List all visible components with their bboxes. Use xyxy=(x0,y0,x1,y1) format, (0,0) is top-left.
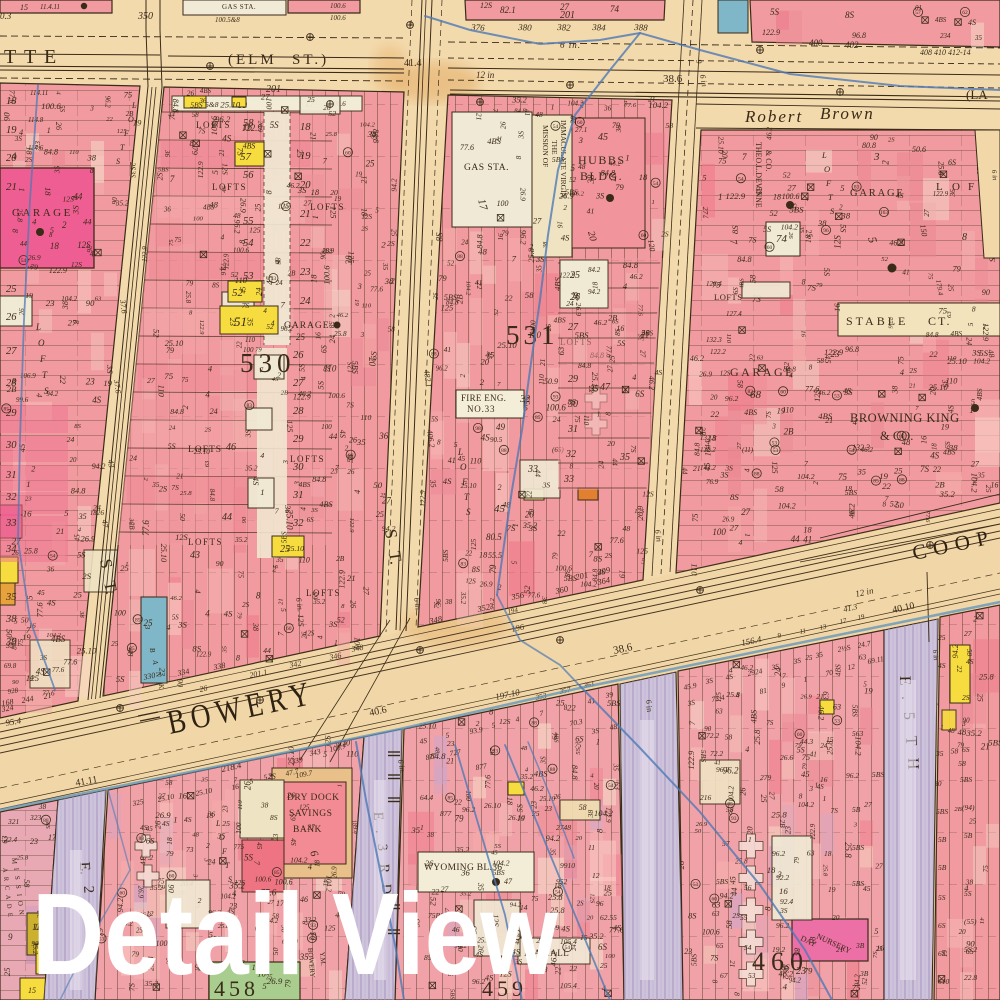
svg-text:4BS: 4BS xyxy=(200,88,212,95)
svg-text:57: 57 xyxy=(915,10,921,16)
svg-text:16: 16 xyxy=(920,435,929,444)
svg-text:58: 58 xyxy=(724,920,734,929)
svg-text:84.8: 84.8 xyxy=(208,489,216,502)
svg-text:27: 27 xyxy=(68,318,77,328)
svg-text:1: 1 xyxy=(625,153,629,163)
svg-text:8: 8 xyxy=(802,278,806,287)
svg-text:6S: 6S xyxy=(307,516,315,524)
svg-text:7S: 7S xyxy=(629,445,638,453)
svg-text:63: 63 xyxy=(946,311,953,318)
svg-text:LOFTS: LOFTS xyxy=(212,182,247,192)
svg-text:122.9: 122.9 xyxy=(198,320,205,335)
svg-text:45: 45 xyxy=(598,132,608,143)
svg-text:35: 35 xyxy=(78,512,87,521)
svg-text:96.2: 96.2 xyxy=(436,366,449,373)
svg-text:25.10: 25.10 xyxy=(716,136,725,153)
svg-text:41: 41 xyxy=(587,206,595,215)
svg-text:84.8: 84.8 xyxy=(171,99,180,113)
svg-text:19: 19 xyxy=(353,299,360,306)
svg-text:122.9: 122.9 xyxy=(981,323,990,341)
svg-text:44: 44 xyxy=(534,469,543,477)
svg-text:18: 18 xyxy=(311,187,320,197)
svg-text:26.9: 26.9 xyxy=(81,534,97,544)
svg-text:41: 41 xyxy=(139,858,148,865)
svg-text:4: 4 xyxy=(32,216,37,226)
svg-text:5: 5 xyxy=(510,561,518,565)
svg-text:90: 90 xyxy=(963,716,970,724)
svg-text:41.4: 41.4 xyxy=(404,58,422,69)
svg-text:A: A xyxy=(151,660,159,665)
svg-text:63: 63 xyxy=(612,782,621,790)
svg-text:18: 18 xyxy=(803,526,812,535)
svg-text:25: 25 xyxy=(947,284,955,292)
svg-text:18: 18 xyxy=(315,859,322,866)
svg-text:36: 36 xyxy=(128,517,135,525)
svg-text:125: 125 xyxy=(249,226,261,235)
svg-text:125: 125 xyxy=(285,420,294,432)
svg-text:25: 25 xyxy=(296,332,306,342)
svg-text:77.6: 77.6 xyxy=(887,317,894,329)
svg-text:(55): (55) xyxy=(964,917,977,926)
svg-text:3S: 3S xyxy=(528,523,538,533)
svg-text:79: 79 xyxy=(190,147,199,155)
svg-text:21: 21 xyxy=(538,359,547,366)
svg-text:7S: 7S xyxy=(807,282,816,292)
svg-text:16: 16 xyxy=(23,508,32,518)
svg-text:1: 1 xyxy=(815,782,819,790)
svg-text:104.2: 104.2 xyxy=(778,501,796,510)
svg-text:19: 19 xyxy=(864,685,873,695)
svg-text:8: 8 xyxy=(603,412,612,416)
svg-text:21: 21 xyxy=(309,132,318,140)
svg-text:2: 2 xyxy=(476,719,480,728)
svg-text:46.2: 46.2 xyxy=(630,272,643,281)
svg-text:18: 18 xyxy=(932,443,939,450)
svg-text:69.8: 69.8 xyxy=(4,662,17,670)
svg-text:36: 36 xyxy=(163,205,172,213)
svg-text:LOFTS: LOFTS xyxy=(290,454,325,464)
svg-text:STABLE: STABLE xyxy=(846,314,908,328)
svg-text:84.8: 84.8 xyxy=(570,765,580,781)
svg-text:22.8: 22.8 xyxy=(964,973,977,982)
svg-text:5BS: 5BS xyxy=(158,167,169,174)
svg-text:11: 11 xyxy=(588,843,595,852)
svg-text:25.8: 25.8 xyxy=(979,672,995,682)
svg-text:25.10: 25.10 xyxy=(461,482,477,490)
svg-text:75: 75 xyxy=(838,472,848,482)
svg-text:8: 8 xyxy=(256,590,261,600)
svg-text:O: O xyxy=(16,900,24,906)
svg-text:1: 1 xyxy=(940,723,944,732)
svg-text:3S: 3S xyxy=(71,205,81,215)
svg-text:79: 79 xyxy=(186,279,194,288)
svg-text:2S: 2S xyxy=(25,155,33,164)
svg-text:Detail View: Detail View xyxy=(32,869,559,999)
svg-text:4S: 4S xyxy=(47,598,56,608)
svg-text:35.2: 35.2 xyxy=(459,591,467,605)
svg-text:27: 27 xyxy=(147,376,156,385)
svg-text:60: 60 xyxy=(286,626,292,632)
svg-text:27: 27 xyxy=(864,800,873,809)
svg-text:5S: 5S xyxy=(839,224,848,233)
svg-text:4: 4 xyxy=(300,376,308,380)
svg-text:8: 8 xyxy=(570,461,574,470)
svg-text:S: S xyxy=(13,875,21,880)
svg-text:79: 79 xyxy=(455,814,464,824)
svg-text:16: 16 xyxy=(616,324,624,333)
svg-text:25: 25 xyxy=(894,466,902,475)
svg-text:21: 21 xyxy=(218,149,226,156)
svg-text:125: 125 xyxy=(441,303,454,313)
svg-text:26: 26 xyxy=(301,631,309,639)
svg-text:877: 877 xyxy=(440,809,452,818)
svg-text:82.1: 82.1 xyxy=(500,5,516,15)
svg-text:26: 26 xyxy=(85,245,93,253)
svg-text:4: 4 xyxy=(632,373,636,382)
svg-text:24: 24 xyxy=(169,424,176,431)
svg-text:83: 83 xyxy=(747,389,753,395)
svg-text:7S: 7S xyxy=(766,411,773,418)
svg-text:4S: 4S xyxy=(561,924,570,934)
svg-text:388: 388 xyxy=(633,22,649,33)
svg-text:4BS: 4BS xyxy=(739,278,746,289)
svg-text:5BS: 5BS xyxy=(716,877,728,886)
svg-text:35: 35 xyxy=(612,763,620,772)
svg-text:77.6: 77.6 xyxy=(609,924,625,934)
svg-text:18: 18 xyxy=(505,797,514,805)
svg-text:56: 56 xyxy=(744,883,752,892)
svg-text:75: 75 xyxy=(16,639,25,647)
svg-text:22: 22 xyxy=(570,964,578,973)
svg-text:99.6: 99.6 xyxy=(16,396,29,404)
svg-text:88: 88 xyxy=(754,472,760,478)
svg-text:22: 22 xyxy=(711,409,720,419)
svg-text:90: 90 xyxy=(982,288,990,297)
svg-text:23: 23 xyxy=(221,805,229,813)
svg-text:18: 18 xyxy=(708,433,717,443)
svg-text:84.2: 84.2 xyxy=(588,266,601,274)
svg-text:4BS: 4BS xyxy=(935,16,947,24)
svg-text:2B: 2B xyxy=(288,269,297,277)
svg-text:45: 45 xyxy=(146,825,154,833)
svg-text:19: 19 xyxy=(133,118,142,128)
svg-text:27: 27 xyxy=(875,862,883,871)
svg-text:41: 41 xyxy=(444,345,451,354)
svg-text:84.8: 84.8 xyxy=(71,486,87,495)
svg-text:D: D xyxy=(5,904,12,910)
svg-text:2B: 2B xyxy=(454,294,464,304)
svg-text:26: 26 xyxy=(488,748,497,756)
svg-text:2: 2 xyxy=(272,565,276,574)
svg-text:4BS: 4BS xyxy=(744,408,757,417)
svg-text:12S: 12S xyxy=(720,370,731,378)
svg-text:75: 75 xyxy=(690,513,700,522)
svg-text:35.2: 35.2 xyxy=(234,536,248,544)
svg-text:8S: 8S xyxy=(44,822,51,829)
svg-text:94.2: 94.2 xyxy=(390,178,399,191)
svg-text:100: 100 xyxy=(193,215,204,222)
svg-text:75: 75 xyxy=(927,273,934,280)
svg-text:52: 52 xyxy=(337,615,345,624)
svg-text:8S: 8S xyxy=(472,565,480,574)
svg-text:35: 35 xyxy=(619,452,630,463)
svg-text:2S: 2S xyxy=(361,226,368,233)
svg-text:16: 16 xyxy=(243,122,252,132)
svg-text:4: 4 xyxy=(221,233,225,241)
svg-text:46.2: 46.2 xyxy=(170,595,182,602)
svg-text:323: 323 xyxy=(29,813,42,822)
svg-text:100.6: 100.6 xyxy=(209,115,219,135)
svg-text:35: 35 xyxy=(356,437,366,447)
svg-text:2: 2 xyxy=(206,841,210,850)
svg-text:5: 5 xyxy=(454,440,458,449)
svg-text:4BS: 4BS xyxy=(951,330,963,338)
svg-text:MISSION OF: MISSION OF xyxy=(541,125,550,167)
svg-text:5: 5 xyxy=(967,322,975,326)
svg-text:4: 4 xyxy=(739,538,743,547)
svg-text:26.9: 26.9 xyxy=(636,505,645,520)
svg-text:5B: 5B xyxy=(938,835,947,844)
svg-text:58: 58 xyxy=(327,321,334,328)
svg-text:3: 3 xyxy=(89,105,94,113)
svg-text:35: 35 xyxy=(275,556,284,564)
svg-text:50.6: 50.6 xyxy=(912,145,926,154)
svg-text:7: 7 xyxy=(281,299,286,309)
svg-text:77.6: 77.6 xyxy=(52,666,65,674)
svg-text:83: 83 xyxy=(247,403,253,409)
svg-text:125: 125 xyxy=(299,804,310,812)
svg-text:4BS: 4BS xyxy=(943,448,956,457)
svg-text:18: 18 xyxy=(479,551,488,560)
svg-text:45: 45 xyxy=(265,275,275,284)
svg-text:60: 60 xyxy=(767,245,773,251)
svg-text:1: 1 xyxy=(173,815,177,825)
svg-text:8S: 8S xyxy=(730,492,739,502)
svg-text:58: 58 xyxy=(965,649,973,657)
svg-text:26.6: 26.6 xyxy=(780,753,793,762)
svg-text:2B: 2B xyxy=(698,427,707,436)
svg-text:48: 48 xyxy=(521,745,528,752)
svg-text:4S: 4S xyxy=(968,18,976,27)
svg-text:4: 4 xyxy=(316,635,325,639)
svg-text:23: 23 xyxy=(545,804,553,813)
svg-text:52: 52 xyxy=(770,209,778,218)
svg-text:44: 44 xyxy=(681,468,688,475)
svg-text:22: 22 xyxy=(236,341,243,348)
svg-text:2: 2 xyxy=(839,204,843,212)
svg-text:8S: 8S xyxy=(74,423,81,430)
svg-text:35: 35 xyxy=(216,831,225,840)
svg-text:36: 36 xyxy=(948,189,957,198)
svg-text:6 in: 6 in xyxy=(990,169,999,181)
svg-text:8: 8 xyxy=(711,980,719,984)
svg-text:7S: 7S xyxy=(434,601,441,608)
svg-text:8: 8 xyxy=(514,155,523,159)
svg-text:8: 8 xyxy=(972,305,976,314)
svg-text:18: 18 xyxy=(50,241,59,251)
svg-text:7: 7 xyxy=(170,174,175,184)
svg-text:12 in: 12 in xyxy=(476,70,495,80)
svg-text:45: 45 xyxy=(74,534,82,542)
svg-text:35: 35 xyxy=(974,34,983,42)
svg-text:79: 79 xyxy=(953,265,961,274)
svg-text:26.9: 26.9 xyxy=(155,810,171,820)
svg-text:31: 31 xyxy=(292,490,304,501)
svg-text:3: 3 xyxy=(622,386,627,395)
svg-text:25.8: 25.8 xyxy=(527,247,536,262)
svg-text:1: 1 xyxy=(596,737,600,747)
svg-text:77.6: 77.6 xyxy=(42,690,55,698)
svg-text:84.8: 84.8 xyxy=(926,330,939,339)
svg-text:110: 110 xyxy=(299,556,310,565)
svg-text:18: 18 xyxy=(43,187,53,196)
svg-text:3S: 3S xyxy=(177,620,187,630)
svg-text:B: B xyxy=(148,648,156,653)
svg-text:4BS: 4BS xyxy=(554,315,566,324)
svg-text:4S: 4S xyxy=(184,815,192,824)
svg-text:12: 12 xyxy=(592,871,600,880)
svg-text:35: 35 xyxy=(857,468,866,477)
svg-text:58: 58 xyxy=(958,759,966,768)
svg-text:4: 4 xyxy=(193,589,202,593)
svg-text:8S: 8S xyxy=(593,554,602,564)
svg-text:19: 19 xyxy=(828,885,836,894)
svg-text:63: 63 xyxy=(859,652,867,661)
svg-text:4: 4 xyxy=(623,281,628,291)
svg-text:3: 3 xyxy=(281,460,290,465)
svg-text:94.2: 94.2 xyxy=(489,597,496,609)
svg-text:79: 79 xyxy=(794,856,801,863)
svg-text:6S: 6S xyxy=(598,942,607,952)
svg-text:46.2: 46.2 xyxy=(861,446,874,454)
svg-text:122.9: 122.9 xyxy=(348,518,355,533)
svg-text:16: 16 xyxy=(313,332,322,340)
svg-text:45: 45 xyxy=(491,849,498,856)
svg-text:27.1: 27.1 xyxy=(575,126,587,134)
svg-text:5: 5 xyxy=(14,618,18,626)
svg-text:4: 4 xyxy=(166,622,171,632)
svg-text:21: 21 xyxy=(836,945,844,954)
svg-text:4: 4 xyxy=(35,393,45,398)
svg-text:100: 100 xyxy=(321,424,332,431)
svg-text:110: 110 xyxy=(582,415,590,426)
svg-text:26.9: 26.9 xyxy=(480,579,493,588)
svg-text:104.2: 104.2 xyxy=(492,859,509,868)
svg-text:100: 100 xyxy=(234,822,243,833)
svg-text:5: 5 xyxy=(50,226,54,235)
svg-text:3S: 3S xyxy=(14,135,23,143)
svg-text:36: 36 xyxy=(46,565,55,574)
svg-text:4S: 4S xyxy=(561,232,570,242)
svg-text:18: 18 xyxy=(773,192,781,201)
svg-text:100.6: 100.6 xyxy=(782,192,800,201)
svg-text:20: 20 xyxy=(367,357,377,366)
svg-text:22: 22 xyxy=(882,481,891,491)
svg-text:49: 49 xyxy=(496,422,506,432)
svg-text:94.2: 94.2 xyxy=(92,462,106,471)
svg-text:6S: 6S xyxy=(635,389,644,399)
svg-text:18: 18 xyxy=(604,884,612,892)
svg-text:88: 88 xyxy=(501,448,507,454)
svg-text:22: 22 xyxy=(300,238,311,249)
svg-text:96.2: 96.2 xyxy=(519,230,529,246)
svg-text:1: 1 xyxy=(420,823,424,832)
svg-text:122.9: 122.9 xyxy=(762,28,780,37)
svg-text:41: 41 xyxy=(523,109,531,116)
svg-text:25.10: 25.10 xyxy=(497,340,517,350)
svg-text:44: 44 xyxy=(168,112,175,119)
svg-text:7: 7 xyxy=(234,777,238,785)
svg-text:96.2: 96.2 xyxy=(772,849,785,858)
svg-text:26.9: 26.9 xyxy=(696,821,708,828)
svg-text:O: O xyxy=(824,164,830,174)
svg-text:27: 27 xyxy=(608,365,615,372)
svg-text:4S: 4S xyxy=(481,432,490,442)
svg-text:77.6: 77.6 xyxy=(370,285,383,294)
svg-text:4BS: 4BS xyxy=(834,664,843,676)
svg-text:80.8: 80.8 xyxy=(862,141,876,150)
svg-text:23: 23 xyxy=(25,495,32,502)
svg-text:58: 58 xyxy=(525,290,534,300)
svg-text:90.5: 90.5 xyxy=(490,436,503,444)
svg-text:27: 27 xyxy=(736,442,743,449)
svg-text:5: 5 xyxy=(375,207,379,215)
svg-text:1: 1 xyxy=(47,126,51,135)
svg-text:S: S xyxy=(466,507,471,517)
svg-text:48: 48 xyxy=(126,648,136,657)
svg-text:2S: 2S xyxy=(732,911,740,920)
svg-text:2S: 2S xyxy=(605,551,613,560)
svg-text:4: 4 xyxy=(853,418,857,427)
svg-text:21: 21 xyxy=(56,527,64,536)
svg-text:35: 35 xyxy=(410,825,420,835)
svg-text:2S: 2S xyxy=(888,137,895,144)
svg-text:54: 54 xyxy=(653,181,659,187)
svg-text:5BS: 5BS xyxy=(872,770,885,779)
svg-text:110: 110 xyxy=(725,334,732,344)
svg-text:46.2: 46.2 xyxy=(816,705,826,721)
svg-text:46.2: 46.2 xyxy=(818,389,831,397)
svg-text:50: 50 xyxy=(5,629,15,638)
svg-text:3S: 3S xyxy=(971,347,981,357)
svg-text:96.2: 96.2 xyxy=(725,394,739,403)
svg-text:79: 79 xyxy=(166,849,174,858)
svg-text:3: 3 xyxy=(853,821,858,828)
svg-text:46.2: 46.2 xyxy=(846,503,856,519)
svg-text:3: 3 xyxy=(771,424,776,431)
svg-text:1: 1 xyxy=(17,188,26,192)
svg-text:5S: 5S xyxy=(575,747,582,754)
svg-text:6S: 6S xyxy=(938,921,946,930)
svg-text:25: 25 xyxy=(556,698,565,708)
svg-text:26: 26 xyxy=(554,793,561,801)
svg-text:L: L xyxy=(35,322,41,332)
svg-text:5: 5 xyxy=(641,557,645,565)
svg-text:27: 27 xyxy=(533,217,542,226)
svg-text:T: T xyxy=(120,143,125,152)
svg-text:2S: 2S xyxy=(128,162,137,170)
svg-text:9: 9 xyxy=(8,932,13,942)
svg-text:1: 1 xyxy=(748,835,752,844)
svg-text:25: 25 xyxy=(976,694,985,702)
svg-text:35: 35 xyxy=(381,262,389,271)
svg-text:77.6: 77.6 xyxy=(35,602,45,618)
svg-text:6 in: 6 in xyxy=(653,529,664,542)
svg-text:100: 100 xyxy=(605,953,616,960)
svg-text:77.6: 77.6 xyxy=(64,657,78,666)
svg-text:75: 75 xyxy=(237,843,244,851)
svg-text:48: 48 xyxy=(623,524,631,533)
